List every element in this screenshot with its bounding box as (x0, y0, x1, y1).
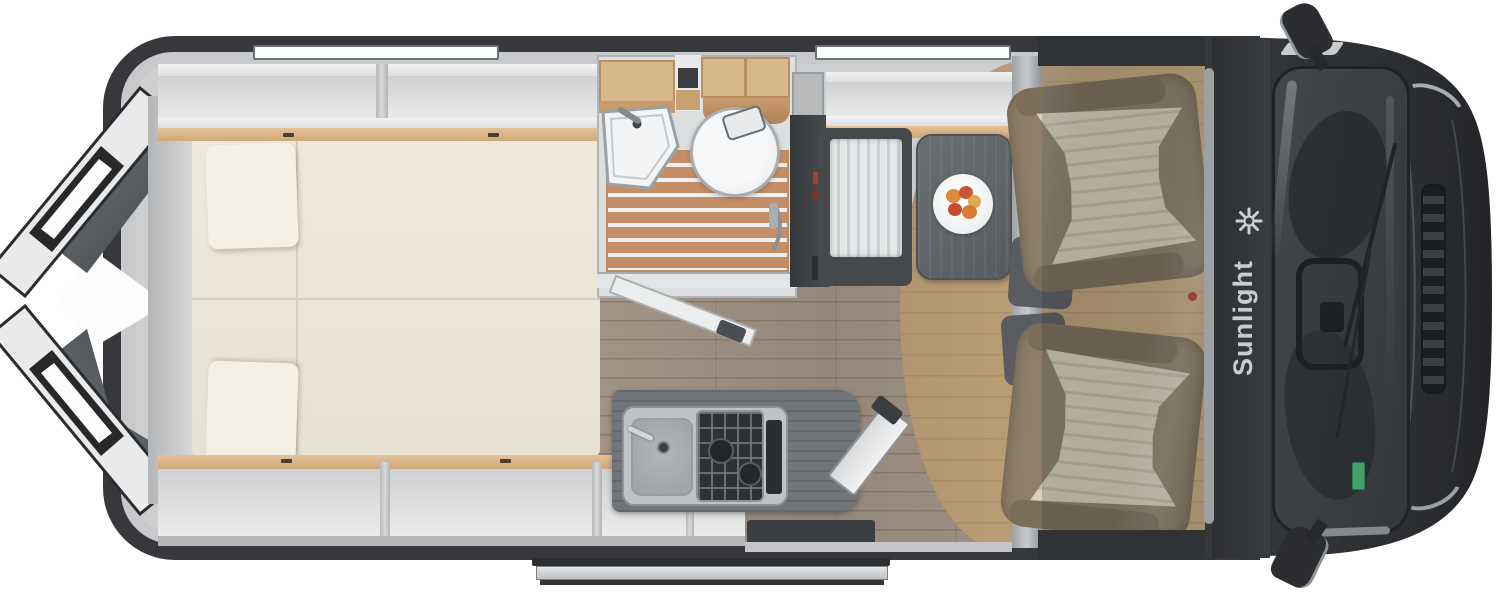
entry-mat (747, 520, 875, 544)
entry-step (536, 566, 888, 580)
brand-logo-text: Sunlight (1228, 240, 1268, 396)
fruit-4 (948, 203, 962, 216)
bathroom-mid-slot (678, 68, 698, 88)
dinette-bench-cushion (830, 139, 902, 257)
entry-step-shadow (532, 558, 890, 566)
cab-roof-edge-top (1038, 36, 1214, 66)
bathroom-shelf-right-divider (744, 57, 747, 98)
rear-door-top-window (41, 159, 112, 239)
bed-mattress-seam-horizontal (192, 298, 600, 300)
bottom-shelf-hinge-left (281, 459, 292, 463)
windshield-left-trim (1204, 68, 1214, 524)
bathroom-shelf-left-lip (599, 101, 675, 113)
steering-hub-reflection (1320, 302, 1344, 332)
shelf-hinge-left (283, 133, 294, 137)
stove-burner-2 (738, 462, 762, 486)
overhead-shelf-wood-edge (158, 128, 600, 141)
stove-burner-1 (708, 438, 734, 464)
bathroom-shelf-left (599, 60, 675, 103)
front-grille (1421, 184, 1446, 394)
bed-pillow-top (205, 142, 299, 249)
kitchen-sink-drain (657, 441, 670, 454)
sunlight-star-icon (1234, 206, 1264, 236)
bottom-shelf-hinge-right (500, 459, 511, 463)
overhead-cabinet-dinette (826, 82, 1012, 118)
overhead-cabinet-dinette-lip (826, 72, 1012, 82)
overhead-cabinet-bed-divider (376, 64, 388, 120)
overhead-cabinet-bed-front (158, 118, 600, 128)
bathroom-mid-wood (676, 90, 700, 110)
bathroom-bottom-wall (597, 272, 797, 288)
shelf-hinge-right (488, 133, 499, 137)
fruit-5 (962, 205, 977, 219)
bottom-shelf-divider-1 (380, 462, 390, 538)
bottom-shelf-divider-2 (592, 462, 602, 538)
overhead-cabinet-dinette-front (826, 116, 1012, 126)
bottom-wall-strip (158, 536, 745, 546)
fruit-plate (933, 174, 993, 234)
bed-pillow-bottom (205, 360, 299, 467)
campervan-floorplan: Sunlight (0, 0, 1500, 592)
cab-roof-edge-bottom (1038, 530, 1214, 560)
wardrobe-top (792, 72, 824, 117)
cab-glass-tint (1042, 66, 1214, 530)
windshield-streak-right (1386, 96, 1394, 396)
roof-skylight-front (815, 45, 1011, 60)
bed-headboard-wall (148, 96, 194, 504)
roof-skylight-rear (253, 45, 499, 60)
entry-step-edge (540, 580, 884, 585)
windshield-sticker-green (1352, 462, 1365, 490)
hood-seam-outer (1452, 120, 1466, 472)
stove-control-panel (766, 420, 782, 494)
rear-door-bottom-window (41, 363, 112, 443)
entry-sill (745, 542, 1012, 552)
